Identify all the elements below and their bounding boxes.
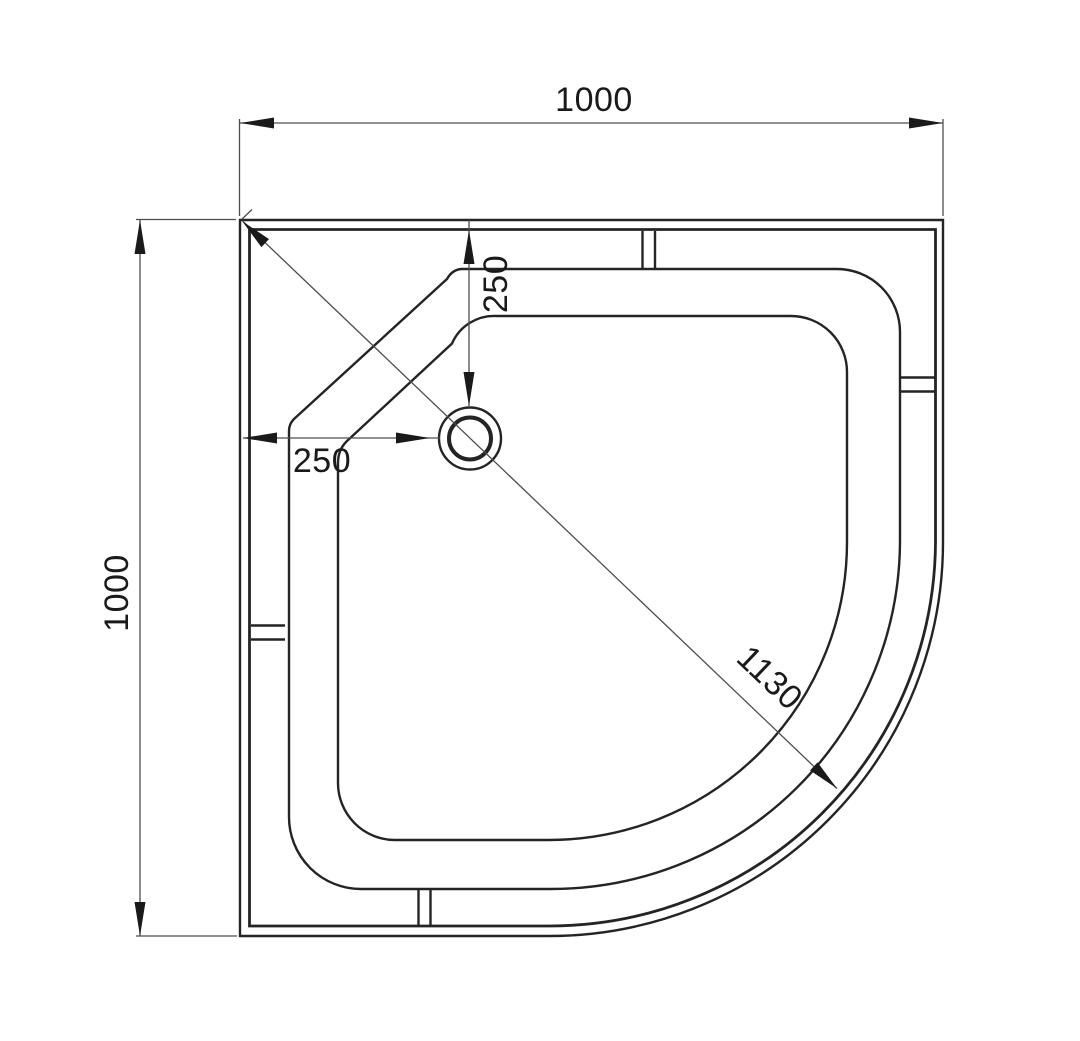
dim-label-drain-offset-vertical: 250: [477, 255, 515, 313]
dim-label-drain-offset-horizontal: 250: [293, 442, 351, 480]
shower-tray-plan-drawing: 1000 1000 250 250: [0, 0, 1080, 1041]
arrowhead-top: [135, 220, 146, 254]
tray-outline: [240, 220, 943, 936]
arrowhead-down: [464, 372, 475, 406]
arrowhead-up: [464, 230, 475, 264]
arrowhead-bottom: [135, 902, 146, 936]
dim-label-overall-width: 1000: [555, 81, 633, 119]
drawing-page: 1000 1000 250 250: [0, 0, 1080, 1041]
dimension-overall-depth: 1000: [98, 220, 237, 937]
rim-joint-tick-right: [901, 378, 935, 392]
tray-basin-edge: [338, 316, 847, 840]
rim-joint-tick-left: [251, 626, 285, 640]
arrowhead-right: [909, 118, 943, 129]
dimension-drain-offset-vertical: 250: [464, 220, 516, 406]
dim-label-overall-depth: 1000: [98, 554, 136, 632]
dimension-line: [243, 222, 837, 789]
arrowhead-left: [240, 118, 274, 129]
tray-outer-edge: [240, 220, 943, 936]
arrowhead-corner: [242, 221, 269, 247]
rim-joint-tick-bottom: [419, 890, 431, 925]
arrowhead-right: [396, 433, 430, 444]
corner-overshoot-tick: [242, 210, 253, 220]
dimension-drain-offset-horizontal: 250: [243, 433, 440, 481]
arrowhead-rim: [810, 762, 837, 788]
tray-rim-edge: [289, 269, 900, 889]
dimension-overall-width: 1000: [240, 81, 944, 216]
dimension-diagonal: 1130: [242, 210, 838, 789]
rim-joint-tick-top: [643, 231, 656, 268]
